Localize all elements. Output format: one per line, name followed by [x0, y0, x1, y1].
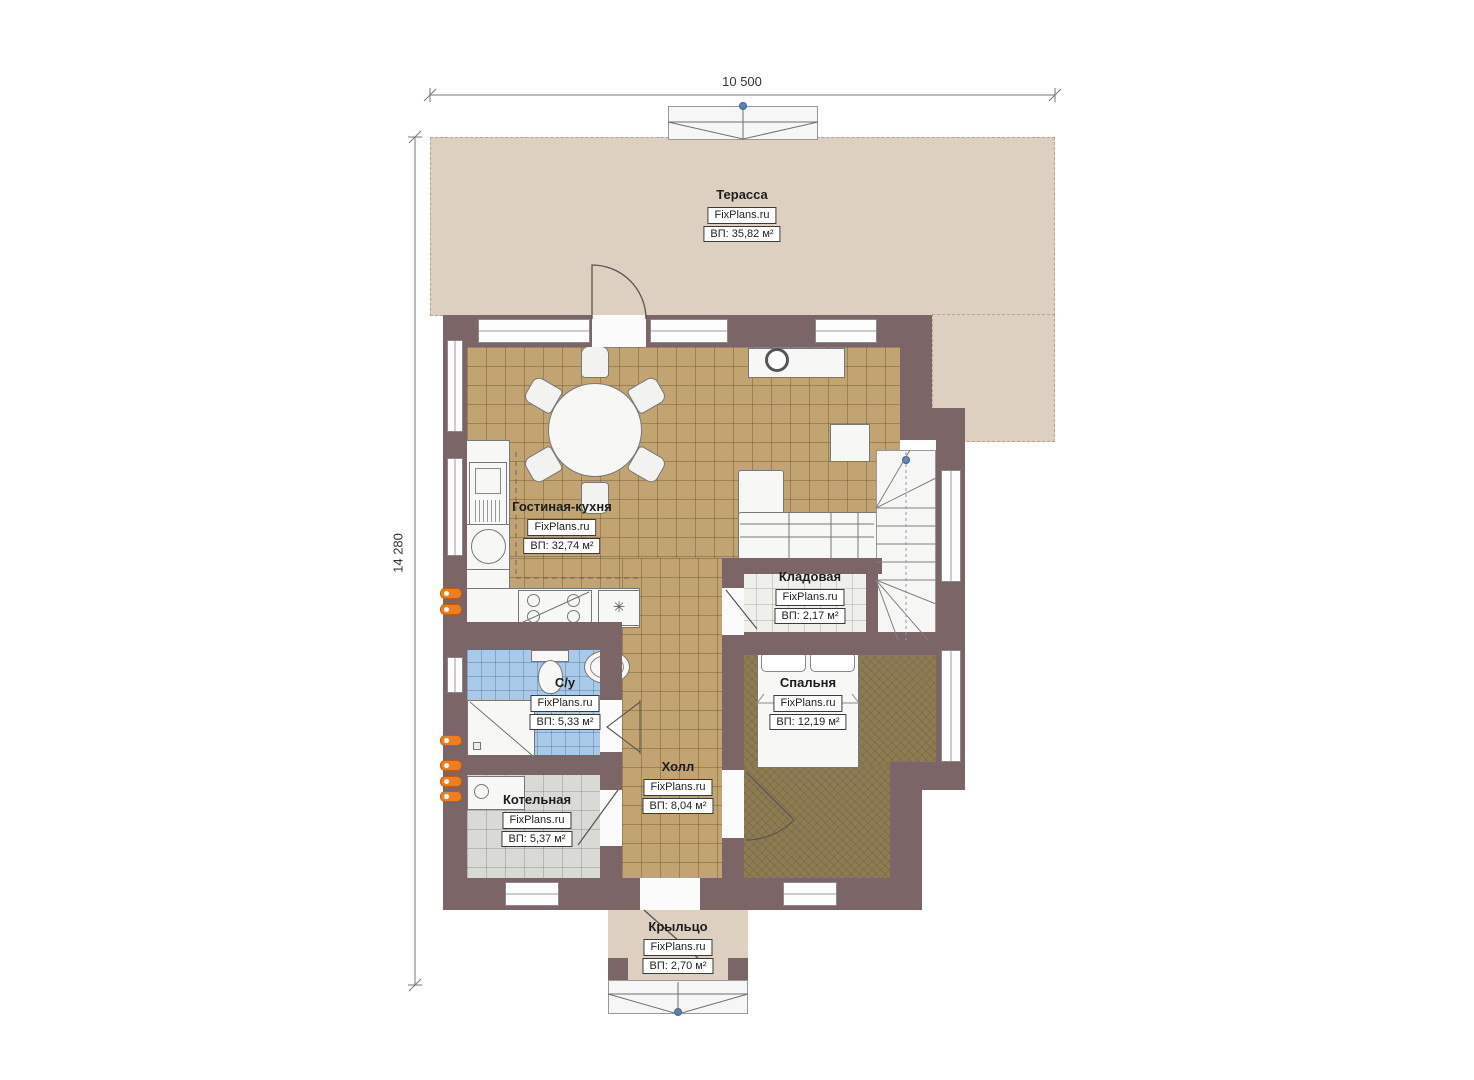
stove-burner: [567, 594, 580, 607]
sofa-seat: [738, 512, 878, 560]
room-brand: FixPlans.ru: [643, 939, 712, 956]
room-area: ВП: 2,70 м²: [642, 958, 713, 975]
window-right-stairs: [941, 470, 961, 582]
room-title: С/у: [529, 676, 600, 691]
window-left-kitchen: [447, 458, 463, 556]
room-title: Спальня: [769, 676, 846, 691]
radiator: [440, 760, 462, 771]
dimension-height: 14 280: [391, 533, 406, 573]
window-bottom-bedroom: [783, 882, 837, 906]
dining-table: [548, 383, 642, 477]
dining-chair: [581, 346, 609, 378]
room-title: Котельная: [501, 793, 572, 808]
wall-right-lower: [890, 790, 922, 910]
wall-bath-boiler: [443, 755, 622, 775]
level-marker-dot: [739, 102, 747, 110]
bedroom-door-opening: [722, 770, 744, 838]
fireplace-flue: [765, 348, 789, 372]
room-area: ВП: 32,74 м²: [523, 538, 600, 555]
window-bottom-boiler: [505, 882, 559, 906]
bed-pillow: [761, 652, 806, 672]
wall-step-out: [900, 408, 965, 440]
terrace-door-opening: [592, 315, 646, 347]
room-title: Терасса: [703, 188, 780, 203]
room-brand: FixPlans.ru: [775, 589, 844, 606]
room-brand: FixPlans.ru: [643, 779, 712, 796]
room-area: ВП: 2,17 м²: [774, 608, 845, 625]
room-brand: FixPlans.ru: [527, 519, 596, 536]
room-label-bedroom: Спальня FixPlans.ru ВП: 12,19 м²: [769, 676, 846, 730]
kitchen-sink: [471, 529, 506, 564]
fireplace-cabinet: [748, 348, 845, 378]
bathroom-door-opening: [600, 700, 622, 752]
bedroom-floor-lower: [744, 765, 890, 878]
room-area: ВП: 5,33 м²: [529, 714, 600, 731]
staircase: [876, 450, 936, 640]
radiator: [440, 588, 462, 599]
boiler-dial: [474, 784, 489, 799]
window-right-bedroom: [941, 650, 961, 762]
bed-pillow: [810, 652, 855, 672]
window-top-living: [478, 319, 590, 343]
side-table: [830, 424, 870, 462]
room-area: ВП: 12,19 м²: [769, 714, 846, 731]
porch-pillar: [728, 958, 748, 980]
radiator: [440, 776, 462, 787]
fridge-inner: [475, 468, 501, 494]
wall-step-in: [890, 762, 965, 790]
room-label-boiler: Котельная FixPlans.ru ВП: 5,37 м²: [501, 793, 572, 847]
room-title: Кладовая: [774, 570, 845, 585]
level-marker-dot: [902, 456, 910, 464]
dishwasher: ✳: [598, 590, 640, 626]
room-title: Крыльцо: [642, 920, 713, 935]
room-label-hall: Холл FixPlans.ru ВП: 8,04 м²: [642, 760, 713, 814]
wall-bedroom-top: [722, 632, 938, 655]
room-label-living-kitchen: Гостиная-кухня FixPlans.ru ВП: 32,74 м²: [512, 500, 612, 554]
dimension-width: 10 500: [722, 74, 762, 89]
room-label-bathroom: С/у FixPlans.ru ВП: 5,33 м²: [529, 676, 600, 730]
room-brand: FixPlans.ru: [502, 812, 571, 829]
fridge-vents: [475, 500, 501, 522]
window-left-bathroom: [447, 657, 463, 693]
room-brand: FixPlans.ru: [773, 695, 842, 712]
radiator: [440, 604, 462, 615]
room-title: Гостиная-кухня: [512, 500, 612, 515]
boiler-door-opening: [600, 790, 622, 846]
room-area: ВП: 8,04 м²: [642, 798, 713, 815]
entrance-door-opening: [640, 878, 700, 910]
terrace-entry-steps: [668, 106, 818, 140]
wall-kitchen-bath: [443, 622, 622, 650]
room-area: ВП: 35,82 м²: [703, 226, 780, 243]
window-left-living: [447, 340, 463, 432]
level-marker-dot: [674, 1008, 682, 1016]
storage-door-opening: [722, 588, 744, 635]
radiator: [440, 791, 462, 802]
room-label-terrace: Терасса FixPlans.ru ВП: 35,82 м²: [703, 188, 780, 242]
window-top-right: [815, 319, 877, 343]
wall-stairs-left: [866, 558, 878, 632]
stove-burner: [527, 594, 540, 607]
window-top-sidelight: [650, 319, 728, 343]
room-area: ВП: 5,37 м²: [501, 831, 572, 848]
shower-drain: [473, 742, 481, 750]
room-label-storage: Кладовая FixPlans.ru ВП: 2,17 м²: [774, 570, 845, 624]
room-title: Холл: [642, 760, 713, 775]
room-brand: FixPlans.ru: [530, 695, 599, 712]
porch-pillar: [608, 958, 628, 980]
room-label-porch: Крыльцо FixPlans.ru ВП: 2,70 м²: [642, 920, 713, 974]
floor-plan-canvas: ✳: [0, 0, 1474, 1080]
room-brand: FixPlans.ru: [707, 207, 776, 224]
radiator: [440, 735, 462, 746]
